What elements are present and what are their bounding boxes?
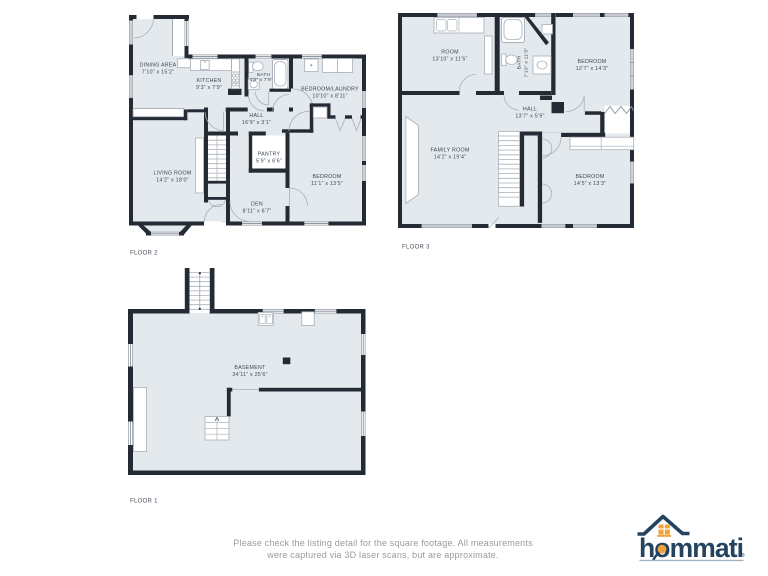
svg-text:12’7” x 14’3”: 12’7” x 14’3” bbox=[576, 66, 608, 72]
svg-text:FLOOR 1: FLOOR 1 bbox=[130, 499, 158, 505]
svg-text:HALL: HALL bbox=[523, 107, 537, 113]
svg-text:were captured via 3D laser sca: were captured via 3D laser scans, but ar… bbox=[266, 550, 498, 560]
svg-text:16’9” x 3’1”: 16’9” x 3’1” bbox=[242, 120, 271, 126]
svg-text:BEDROOM: BEDROOM bbox=[312, 174, 341, 180]
svg-text:14’2” x 18’0”: 14’2” x 18’0” bbox=[156, 177, 188, 183]
svg-text:BATH: BATH bbox=[257, 72, 271, 78]
svg-text:FLOOR 3: FLOOR 3 bbox=[402, 245, 430, 251]
svg-text:®: ® bbox=[741, 552, 745, 559]
svg-text:HALL: HALL bbox=[249, 113, 263, 119]
svg-text:Please check the listing detai: Please check the listing detail for the … bbox=[233, 538, 533, 548]
svg-text:4’5” x 7’9”: 4’5” x 7’9” bbox=[249, 77, 272, 83]
svg-text:8’11” x 6’7”: 8’11” x 6’7” bbox=[243, 208, 272, 214]
svg-text:BEDROOM: BEDROOM bbox=[575, 174, 604, 180]
svg-text:BASEMENT: BASEMENT bbox=[234, 365, 266, 371]
svg-text:5’9” x 6’6”: 5’9” x 6’6” bbox=[256, 158, 282, 164]
svg-text:7’10” x 15’2”: 7’10” x 15’2” bbox=[142, 69, 174, 75]
svg-text:DINING AREA: DINING AREA bbox=[140, 63, 177, 69]
svg-text:10’10” x 8’11”: 10’10” x 8’11” bbox=[312, 93, 347, 99]
svg-text:DEN: DEN bbox=[251, 202, 263, 208]
svg-text:7’10” x 11’5”: 7’10” x 11’5” bbox=[523, 47, 529, 77]
svg-text:9’3” x 7’9”: 9’3” x 7’9” bbox=[196, 85, 222, 91]
svg-text:13’7” x 5’9”: 13’7” x 5’9” bbox=[515, 113, 544, 119]
svg-text:14’5” x 13’3”: 14’5” x 13’3” bbox=[574, 181, 606, 187]
svg-text:34’11” x 25’6”: 34’11” x 25’6” bbox=[232, 372, 267, 378]
svg-text:PANTRY: PANTRY bbox=[258, 152, 281, 158]
svg-text:FAMILY ROOM: FAMILY ROOM bbox=[430, 148, 469, 154]
svg-text:FLOOR 2: FLOOR 2 bbox=[130, 251, 158, 257]
svg-text:14’2” x 19’4”: 14’2” x 19’4” bbox=[434, 154, 466, 160]
svg-text:BEDROOM: BEDROOM bbox=[577, 59, 606, 65]
svg-text:13’10” x 11’5”: 13’10” x 11’5” bbox=[432, 56, 467, 62]
svg-text:KITCHEN: KITCHEN bbox=[197, 78, 222, 84]
svg-text:LIVING ROOM: LIVING ROOM bbox=[153, 171, 191, 177]
svg-text:11’1” x 13’5”: 11’1” x 13’5” bbox=[311, 181, 343, 187]
svg-text:BEDROOM/LAUNDRY: BEDROOM/LAUNDRY bbox=[301, 87, 359, 93]
svg-text:ROOM: ROOM bbox=[441, 50, 458, 56]
svg-text:BATH: BATH bbox=[517, 55, 523, 69]
